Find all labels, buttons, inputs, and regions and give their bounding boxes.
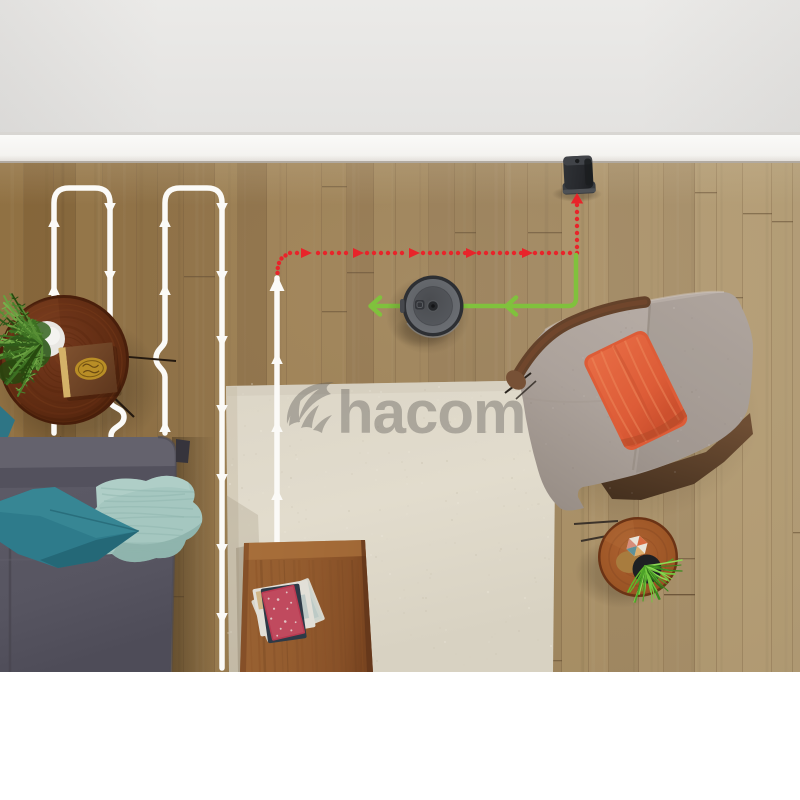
svg-text:hacom: hacom [337,379,525,446]
